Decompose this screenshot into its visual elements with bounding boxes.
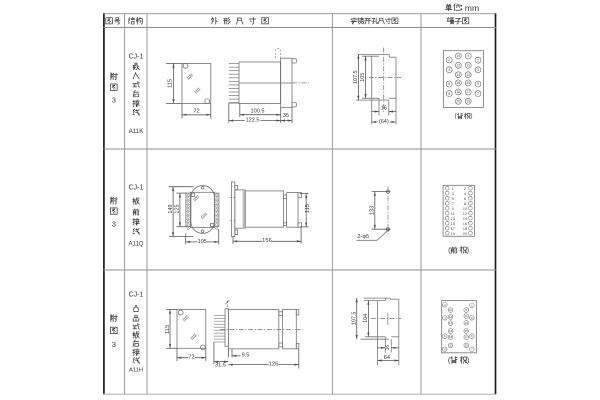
svg-text:16: 16 — [381, 105, 387, 111]
svg-text:105: 105 — [197, 239, 207, 245]
svg-text:15: 15 — [465, 329, 469, 333]
svg-text:A11K: A11K — [129, 128, 145, 135]
svg-text:8: 8 — [448, 92, 450, 96]
svg-text:12: 12 — [456, 64, 460, 68]
svg-text:(64): (64) — [379, 119, 389, 125]
svg-text:105: 105 — [360, 73, 366, 82]
svg-text:CJ-1: CJ-1 — [129, 53, 144, 60]
svg-text:18: 18 — [456, 90, 460, 94]
svg-text:16: 16 — [449, 329, 453, 333]
svg-text:20: 20 — [449, 344, 453, 348]
svg-text:2: 2 — [448, 58, 450, 62]
svg-text:9.5: 9.5 — [242, 353, 250, 359]
svg-text:149: 149 — [168, 204, 174, 213]
svg-text:16: 16 — [456, 81, 460, 85]
svg-text:10: 10 — [449, 308, 453, 312]
svg-text:115: 115 — [305, 204, 311, 213]
svg-text:CJ-1: CJ-1 — [129, 184, 144, 191]
svg-text:CJ-1: CJ-1 — [129, 291, 144, 298]
svg-text:35: 35 — [283, 113, 289, 119]
svg-text:7: 7 — [477, 92, 479, 96]
svg-text:15: 15 — [466, 81, 470, 85]
svg-text:72: 72 — [193, 108, 199, 114]
svg-text:13: 13 — [466, 73, 470, 77]
svg-text:107.5: 107.5 — [352, 312, 358, 326]
svg-text:64: 64 — [384, 355, 390, 361]
svg-text:mm: mm — [465, 3, 479, 13]
svg-text:9: 9 — [467, 54, 469, 58]
svg-text:4: 4 — [448, 68, 450, 72]
svg-text:72: 72 — [188, 355, 194, 361]
svg-text:3: 3 — [112, 220, 116, 229]
svg-text:11: 11 — [465, 314, 468, 318]
svg-text:126: 126 — [269, 362, 279, 368]
svg-text:6: 6 — [448, 82, 450, 86]
svg-text:A11H: A11H — [129, 368, 143, 374]
svg-text:): ) — [470, 113, 472, 120]
svg-text:17: 17 — [465, 335, 469, 339]
svg-text:100.5: 100.5 — [251, 109, 265, 115]
svg-text:1: 1 — [477, 58, 479, 62]
svg-text:φ5: φ5 — [362, 234, 369, 240]
svg-text:16: 16 — [385, 345, 391, 351]
svg-text:3: 3 — [112, 340, 116, 349]
svg-text:13: 13 — [465, 321, 469, 325]
svg-text:): ) — [467, 246, 469, 255]
svg-text:125: 125 — [175, 204, 181, 213]
svg-text:17: 17 — [466, 90, 470, 94]
svg-text:3: 3 — [112, 96, 116, 105]
svg-text:104: 104 — [363, 314, 369, 323]
svg-text:12: 12 — [449, 315, 453, 319]
svg-text:115: 115 — [168, 79, 174, 88]
svg-text:11: 11 — [466, 64, 470, 68]
svg-text:A11Q: A11Q — [129, 241, 144, 247]
svg-text:20: 20 — [456, 100, 460, 104]
svg-text:14: 14 — [449, 321, 453, 325]
svg-text:107.5: 107.5 — [353, 70, 359, 84]
svg-text:19: 19 — [451, 231, 456, 236]
svg-text:31.5: 31.5 — [215, 363, 226, 369]
svg-text:10: 10 — [456, 54, 460, 58]
svg-text:19: 19 — [465, 344, 469, 348]
svg-text:20: 20 — [463, 231, 468, 236]
svg-text:5: 5 — [477, 82, 479, 86]
svg-text:156: 156 — [262, 238, 272, 244]
svg-text:3: 3 — [477, 68, 479, 72]
svg-text:122.5: 122.5 — [246, 118, 260, 124]
svg-text:14: 14 — [456, 73, 460, 77]
svg-text:19: 19 — [466, 100, 470, 104]
svg-text:133: 133 — [370, 206, 376, 215]
svg-text:115: 115 — [165, 325, 171, 334]
svg-text:18: 18 — [449, 335, 453, 339]
